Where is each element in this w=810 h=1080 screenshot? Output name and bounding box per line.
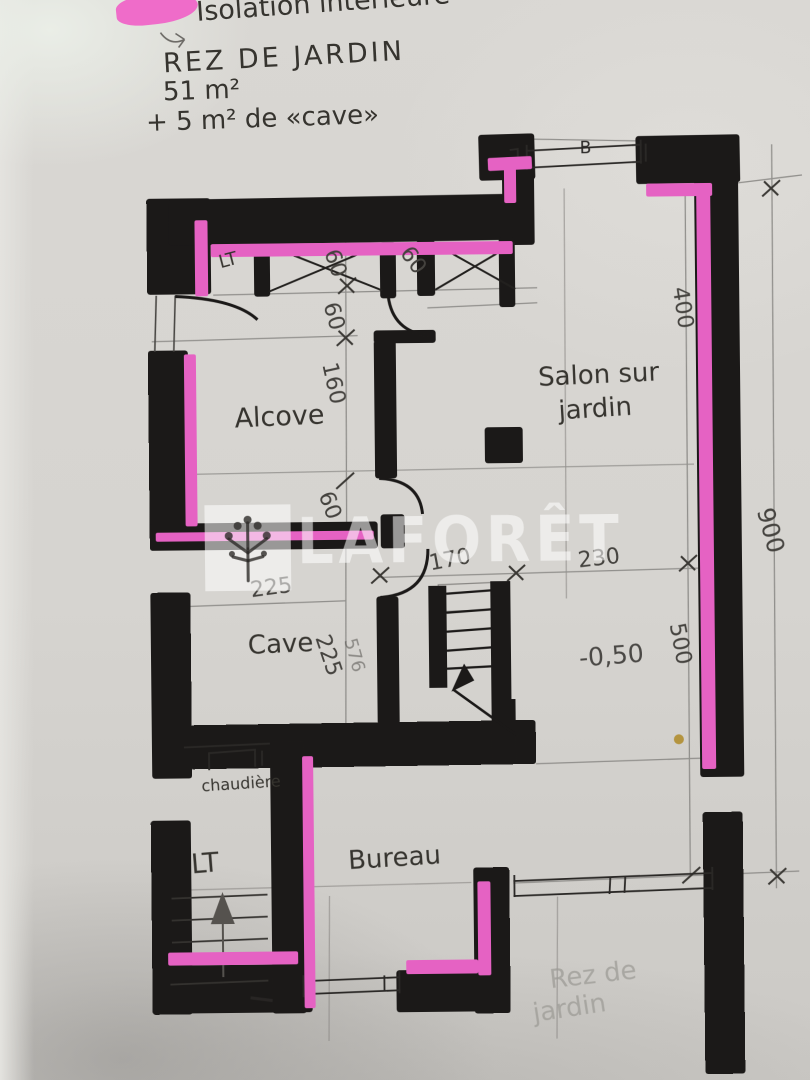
pink-left-wall xyxy=(184,354,198,526)
wall-alcove-right xyxy=(374,340,397,478)
window-lt-bottom xyxy=(302,971,400,997)
laforet-logo-box xyxy=(204,504,291,591)
down-arrow-icon xyxy=(451,663,474,691)
level-annotation: -0,50 xyxy=(578,638,645,672)
room-label-alcove: Alcove xyxy=(234,399,325,434)
room-label-salon-line1: Salon sur xyxy=(537,357,659,392)
window-terrace xyxy=(513,867,713,897)
laforet-tree-icon xyxy=(204,504,291,591)
room-label-bureau: Bureau xyxy=(347,840,442,876)
pink-salon-left-jamb xyxy=(504,167,516,203)
window-mark-b: B xyxy=(580,138,592,158)
wall-cave-right xyxy=(376,596,399,724)
salon-pillar xyxy=(485,427,523,463)
pink-top-left-corner xyxy=(194,220,208,296)
dim-60-b: 60 xyxy=(318,300,350,334)
room-label-boiler: chaudière xyxy=(201,771,281,795)
room-label-salon-line2: jardin xyxy=(558,392,633,427)
laforet-wordmark: LAFORÊT xyxy=(296,502,623,578)
room-label-lt: LT xyxy=(190,847,220,880)
wall-cave-bottom xyxy=(190,720,537,769)
pink-top-wall xyxy=(211,241,513,257)
wall-top-left xyxy=(168,194,517,246)
up-arrow-icon xyxy=(210,892,234,924)
dim-400: 400 xyxy=(667,285,698,330)
footnote-line2: jardin xyxy=(531,988,608,1029)
dim-225-vertical: 225 xyxy=(309,632,346,680)
dim-500: 500 xyxy=(664,621,696,667)
pink-bureau-bottom xyxy=(406,959,478,974)
window-left-wall xyxy=(154,296,176,352)
wall-left-middle xyxy=(150,592,192,778)
room-label-cave: Cave xyxy=(247,628,314,661)
dim-900: 900 xyxy=(751,504,790,556)
gold-speck xyxy=(674,734,684,744)
wall-bureau-bottom xyxy=(396,969,510,1012)
wall-right-lower xyxy=(703,812,746,1074)
floorplan-drawing: LT Alcove Salon sur jardin Cave chaudièr… xyxy=(0,0,810,1080)
pink-bureau-right xyxy=(477,881,491,975)
pink-bottom-left xyxy=(168,951,298,965)
annotation-arrow-icon xyxy=(160,32,184,47)
floorplan-photo: Isolation intérieure REZ DE JARDIN 51 m²… xyxy=(0,0,810,1080)
pink-lt-divider xyxy=(302,756,316,1008)
